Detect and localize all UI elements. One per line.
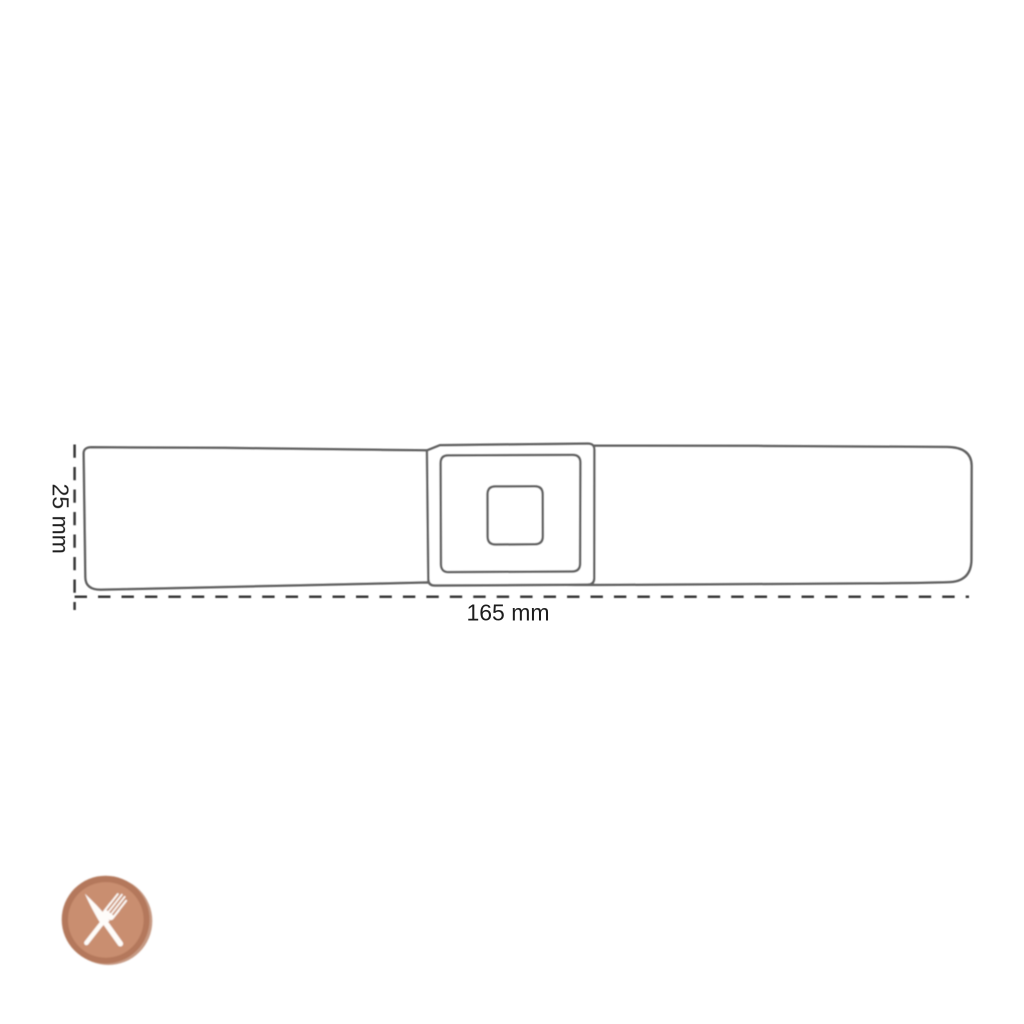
svg-text:25 mm: 25 mm bbox=[48, 484, 74, 554]
svg-text:165 mm: 165 mm bbox=[466, 599, 549, 625]
